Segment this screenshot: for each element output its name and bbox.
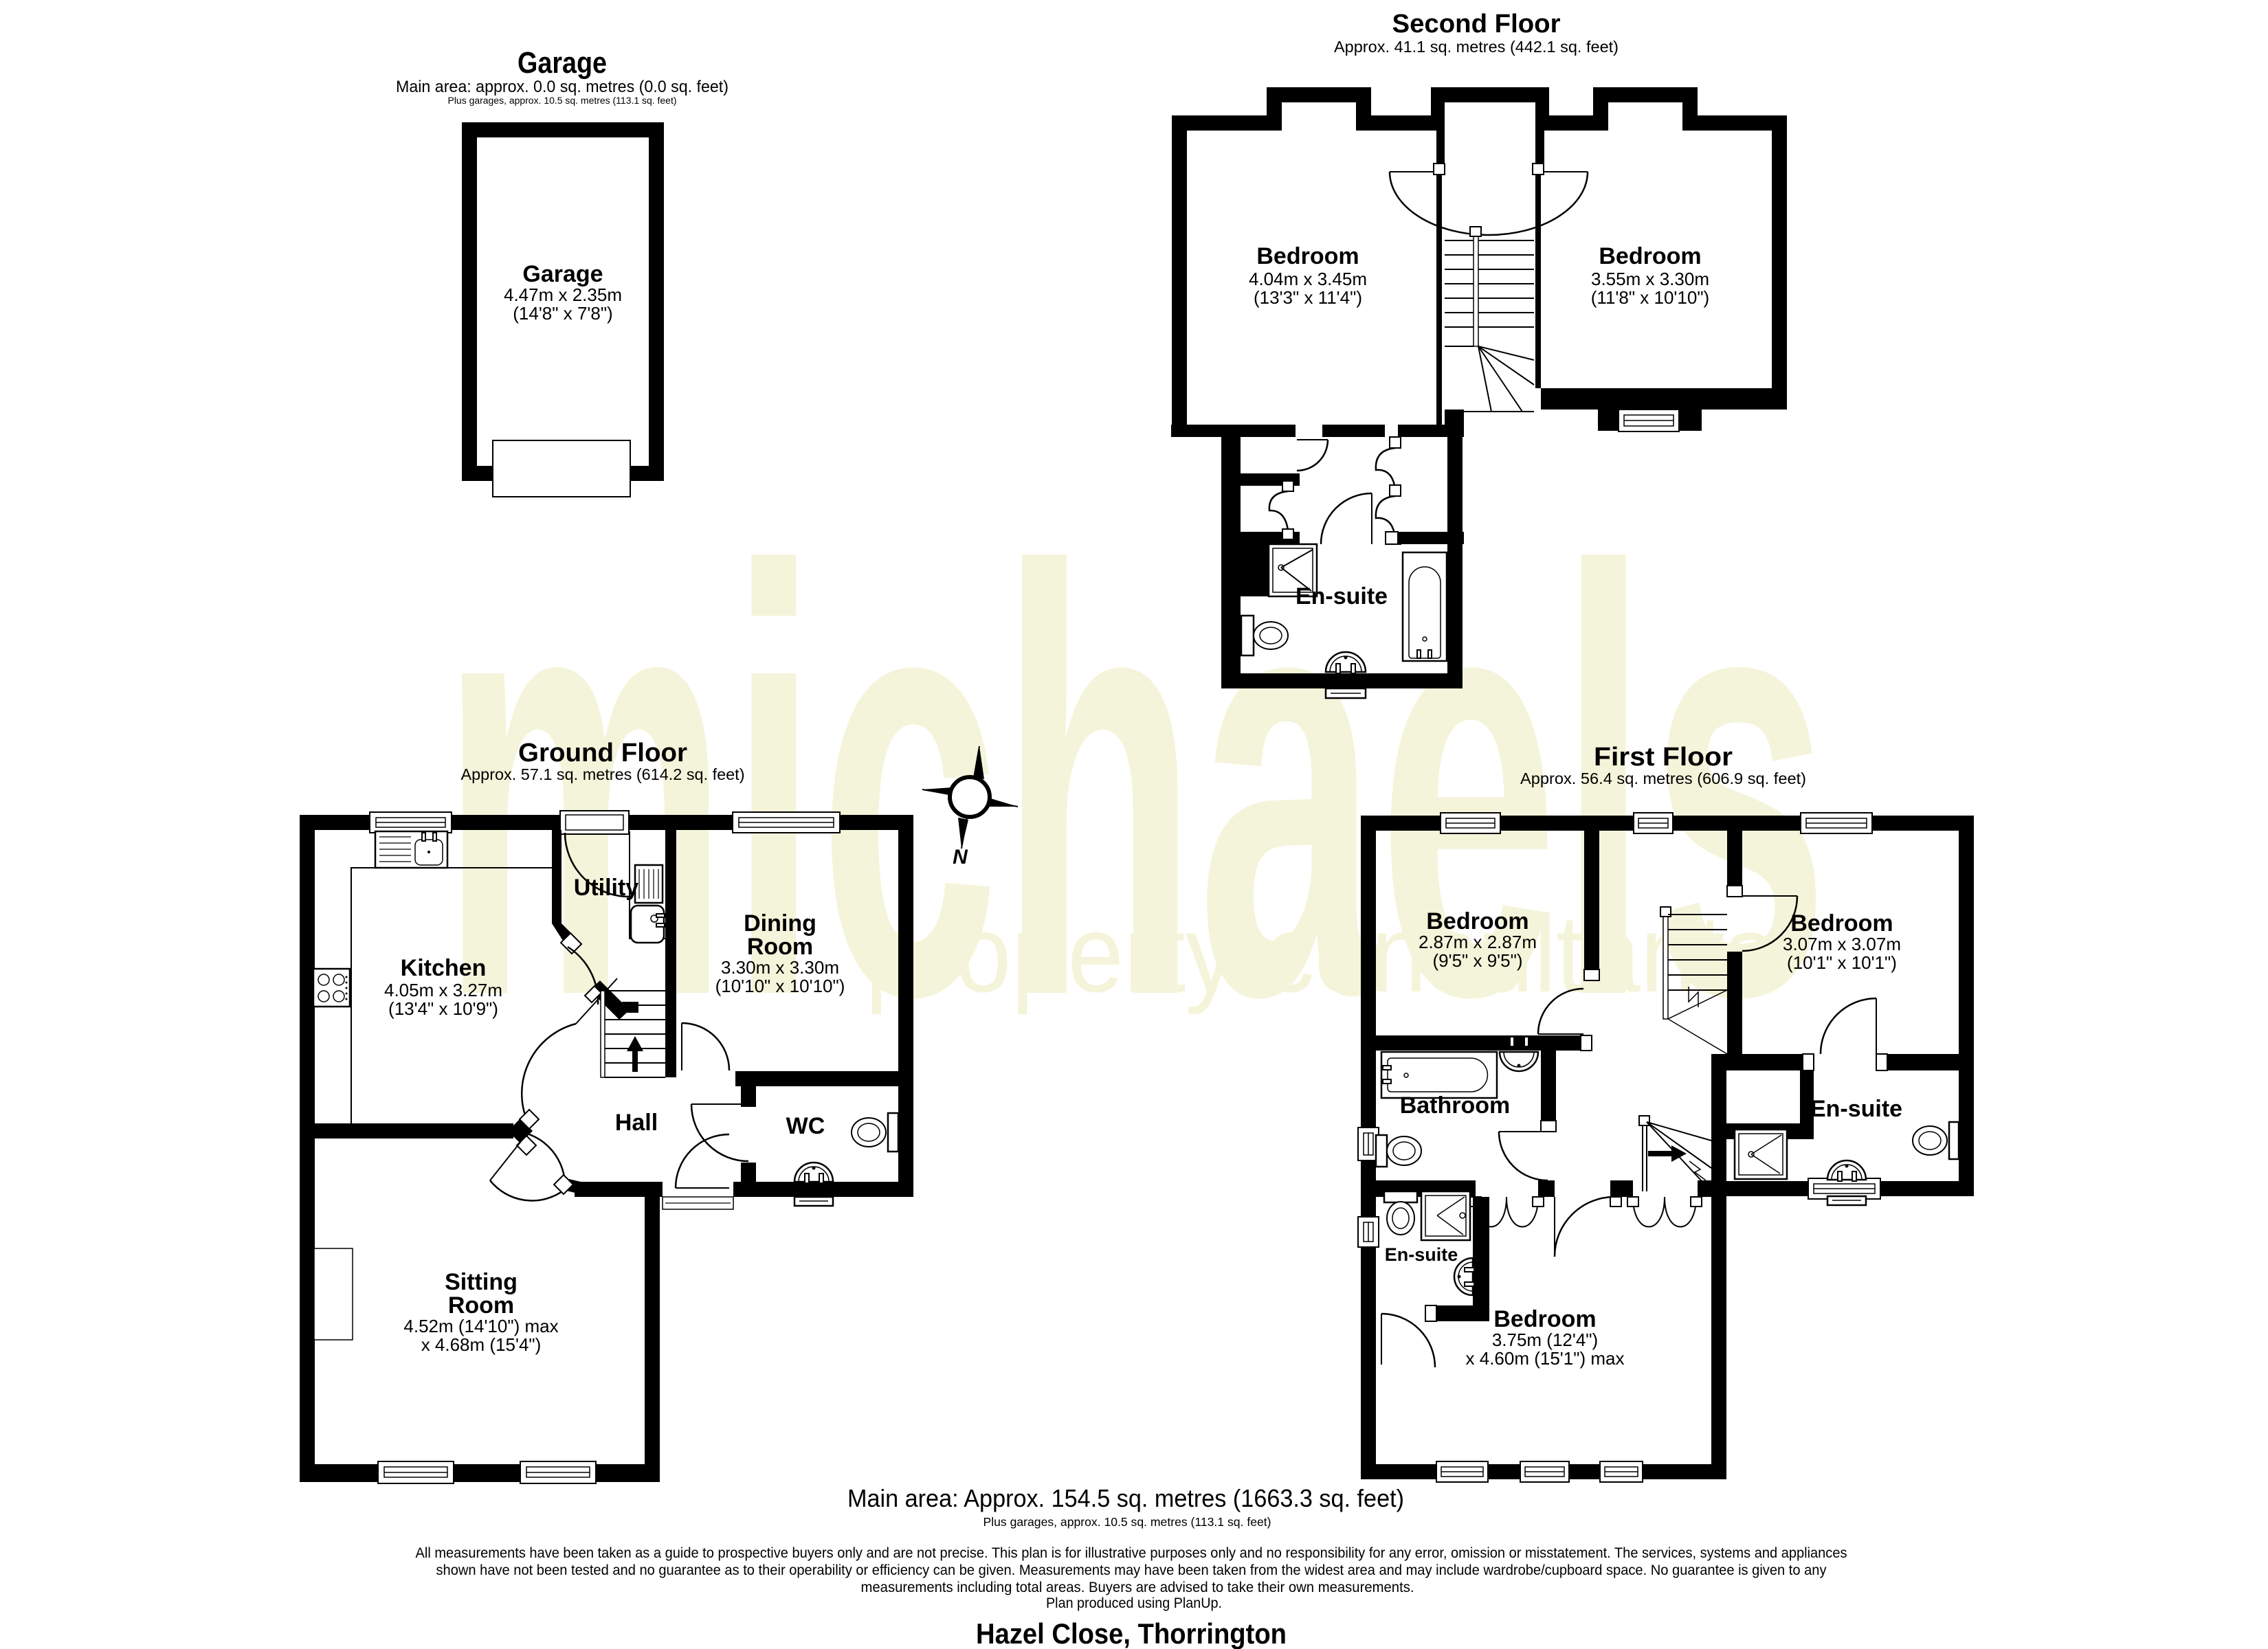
svg-text:3.75m (12'4"): 3.75m (12'4") — [1492, 1330, 1598, 1350]
svg-text:Dining: Dining — [744, 910, 816, 936]
svg-text:Sitting: Sitting — [445, 1269, 518, 1295]
svg-text:Second Floor: Second Floor — [1392, 10, 1561, 38]
svg-text:x 4.68m (15'4"): x 4.68m (15'4") — [421, 1334, 542, 1355]
svg-text:Bathroom: Bathroom — [1400, 1092, 1511, 1119]
svg-text:4.05m x 3.27m: 4.05m x 3.27m — [384, 980, 502, 1000]
svg-text:En-suite: En-suite — [1810, 1096, 1902, 1122]
svg-text:Approx. 41.1 sq. metres (442.1: Approx. 41.1 sq. metres (442.1 sq. feet) — [1334, 38, 1619, 56]
svg-text:Bedroom: Bedroom — [1256, 243, 1359, 269]
svg-text:Plan produced using PlanUp.: Plan produced using PlanUp. — [1046, 1595, 1222, 1611]
svg-text:Plus garages, approx. 10.5 sq.: Plus garages, approx. 10.5 sq. metres (1… — [448, 96, 677, 106]
svg-text:Approx. 57.1 sq. metres (614.2: Approx. 57.1 sq. metres (614.2 sq. feet) — [461, 765, 745, 783]
svg-text:(10'1" x 10'1"): (10'1" x 10'1") — [1787, 952, 1897, 973]
svg-text:Main area: approx. 0.0 sq. met: Main area: approx. 0.0 sq. metres (0.0 s… — [396, 78, 729, 96]
svg-text:Utility: Utility — [574, 875, 639, 901]
svg-text:Plus garages, approx. 10.5 sq.: Plus garages, approx. 10.5 sq. metres (1… — [983, 1515, 1271, 1529]
svg-text:property consultants: property consultants — [865, 892, 1775, 1015]
svg-text:Bedroom: Bedroom — [1790, 910, 1893, 936]
svg-text:x 4.60m (15'1") max: x 4.60m (15'1") max — [1466, 1348, 1625, 1369]
svg-text:Hazel Close, Thorrington: Hazel Close, Thorrington — [976, 1617, 1287, 1649]
svg-text:3.30m x 3.30m: 3.30m x 3.30m — [721, 957, 839, 978]
svg-text:(13'4" x 10'9"): (13'4" x 10'9") — [388, 998, 498, 1019]
svg-text:En-suite: En-suite — [1385, 1244, 1458, 1265]
svg-text:N: N — [953, 846, 968, 868]
svg-text:First Floor: First Floor — [1594, 743, 1733, 772]
svg-text:(9'5" x 9'5"): (9'5" x 9'5") — [1433, 950, 1523, 971]
svg-text:Bedroom: Bedroom — [1599, 243, 1701, 269]
svg-text:4.47m x 2.35m: 4.47m x 2.35m — [504, 284, 622, 305]
svg-text:Room: Room — [448, 1292, 514, 1319]
svg-text:WC: WC — [786, 1113, 825, 1139]
svg-text:Main area: Approx. 154.5 sq. m: Main area: Approx. 154.5 sq. metres (166… — [847, 1484, 1404, 1512]
svg-text:3.55m x 3.30m: 3.55m x 3.30m — [1591, 269, 1709, 289]
svg-text:3.07m x 3.07m: 3.07m x 3.07m — [1783, 934, 1901, 954]
svg-text:All measurements have been tak: All measurements have been taken as a gu… — [416, 1545, 1847, 1561]
svg-text:(11'8" x 10'10"): (11'8" x 10'10") — [1591, 287, 1709, 308]
svg-text:(13'3" x 11'4"): (13'3" x 11'4") — [1254, 287, 1362, 308]
svg-text:Room: Room — [747, 934, 813, 960]
svg-text:shown have not been tested and: shown have not been tested and no guaran… — [436, 1562, 1827, 1578]
svg-text:(14'8" x 7'8"): (14'8" x 7'8") — [513, 303, 612, 324]
svg-text:En-suite: En-suite — [1296, 583, 1388, 609]
svg-text:Approx. 56.4 sq. metres (606.9: Approx. 56.4 sq. metres (606.9 sq. feet) — [1520, 770, 1806, 787]
svg-text:Garage: Garage — [518, 46, 607, 80]
svg-text:Kitchen: Kitchen — [401, 955, 487, 981]
svg-text:Garage: Garage — [522, 261, 603, 287]
svg-text:Bedroom: Bedroom — [1426, 908, 1528, 934]
svg-text:measurements including total a: measurements including total areas. Buye… — [861, 1580, 1414, 1595]
svg-text:4.04m x 3.45m: 4.04m x 3.45m — [1249, 269, 1367, 289]
svg-text:(10'10" x 10'10"): (10'10" x 10'10") — [715, 976, 845, 996]
svg-text:Hall: Hall — [615, 1110, 658, 1136]
svg-text:Ground Floor: Ground Floor — [518, 739, 687, 767]
svg-text:Bedroom: Bedroom — [1493, 1306, 1596, 1332]
svg-text:2.87m x 2.87m: 2.87m x 2.87m — [1419, 932, 1537, 952]
svg-text:4.52m (14'10") max: 4.52m (14'10") max — [403, 1316, 558, 1336]
